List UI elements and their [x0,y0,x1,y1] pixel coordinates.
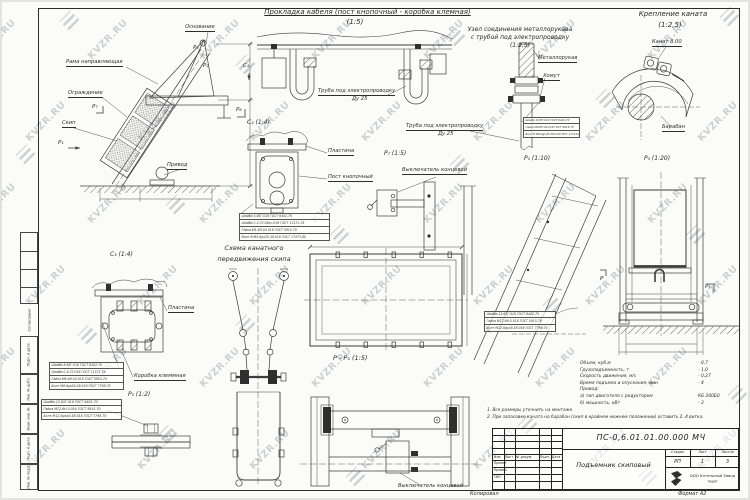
hw-row: Винт В.М6-6gх25.58.016 ГОСТ 17473-80 [523,130,580,137]
title-block: Изм. Лист № докум. Подп. Дата Проект Про… [492,428,739,490]
note-line: 1. Все размеры уточнить на монтаже. [487,408,739,415]
format-label: Формат А2 [678,491,706,497]
view-label-pp5: Р - Р₅ (1:5) [333,354,368,362]
hardware-list-node: Шайба 6.65Г.016 ГОСТ 6402-70 Гайка М6-6Н… [523,117,580,138]
spec-label: Скорость движения, м/с [580,374,636,379]
tb-sheets-value: 3 [715,459,740,465]
label-clamp: Хомут [543,74,560,81]
spec-label: Время подъема и опускания, мин [580,381,658,386]
spec-value: - 0,7 [698,361,708,366]
hardware-list-r5: Шайба 12.65Г.016 ГОСТ 6402-70 Гайка М12-… [41,399,122,420]
spec-value: - 3 [698,401,704,406]
spec-label: б) мощность, кВт [580,401,620,406]
mark-r2: Р₂ [203,63,209,69]
spec-label: Объем, куб.м [580,361,611,366]
cable-view-scale: (1:5) [340,18,370,26]
view-label-c2: С₂ (1:4) [247,119,270,126]
view-label-r5: Р₅ (1:2) [128,391,150,398]
spec-value: - 4 [698,381,704,386]
tb-row-gip: ГИП [494,475,515,479]
tb-sheet-label: Лист [690,450,715,454]
scheme-title-2: передвижения скипа [204,255,304,263]
company-logo [671,471,682,486]
hardware-list-c2: Шайба 5.65Г.016 ГОСТ 6402-70 Шайба С.5.3… [239,213,330,241]
drawing-line-art [0,0,750,500]
label-base: Основание [185,25,215,32]
hw-row: Болт М12-6gх40.58.016 ГОСТ 7798-70 [41,412,122,419]
tb-row-prover: Провер. [494,468,515,472]
spec-row: б) мощность, кВт- 3 [580,401,720,408]
label-plate-c2: Пластина [328,149,354,156]
tb-doc-title: Подъемник скиповый [562,461,665,469]
spec-row: Привод: [580,387,720,394]
spec-row: Скорость движения, м/с- 0,27 [580,374,720,381]
spec-row: Время подъема и опускания, мин- 4 [580,381,720,388]
tb-company-1: ООО Котельный Завод [685,473,740,478]
spec-value: - 1,0 [698,368,708,373]
drawing-notes: 1. Все размеры уточнить на монтаже. 2. П… [487,408,739,421]
rope-scheme-art [229,268,289,486]
tb-sheet-value: 1 [690,459,715,465]
label-button-post: Пост кнопочный [328,175,373,182]
view-label-r1: Р₁ (1:10) [524,155,550,162]
node-view-title-1: Узел соединения металлорукава [440,26,600,33]
hardware-list-c3: Шайба 8.65Г.016 ГОСТ 6402-70 Шайба С.8.3… [49,362,124,390]
label-conduit-dn: Ду 25 [352,97,367,103]
label-metal-hose: Металлорукав [538,56,577,63]
guide-frame-r3-art [600,172,739,355]
spec-value: - 0,27 [698,374,711,379]
label-plate-c3: Пластина [168,306,194,313]
scheme-title-1: Схема канатного [204,244,304,252]
hw-row: Винт В.М5-6gх20.58.016 ГОСТ 17473-80 [239,233,330,240]
mark-c4: С₄ [243,63,249,69]
tb-col-data: Дата [552,455,562,459]
label-skip: Скип [62,121,76,128]
hardware-list-r1: Шайба 12.65Г.016 ГОСТ 6402-70 Гайка М12-… [484,311,556,332]
spec-row: а) тип двигателя с редукторомКБ 200Б0 [580,394,720,401]
mark-r4: Р₄ [193,45,199,51]
spec-label: а) тип двигателя с редуктором [580,394,653,399]
label-terminal-box: Коробка клеммная [134,374,186,381]
label-rope: Канат 8.00 [652,40,682,47]
view-label-c3: С₃ (1:4) [110,251,133,258]
cable-view-title: Прокладка кабеля (пост кнопочный - короб… [240,8,495,16]
tb-stage-value: РП [665,459,690,465]
inclined-frame-r1-art [460,174,606,377]
tb-col-dokum: № докум. [516,455,538,459]
label-drive: Привод [167,163,187,170]
tb-company-2: "РЭП" [685,479,740,484]
rope-fastening-art [612,47,700,140]
mark-r7: Р₇ [92,104,98,110]
label-guard: Ограждение [68,91,103,98]
mark-r3-p: Р [600,276,603,282]
tb-col-podp: Подп. [540,455,551,459]
label-limit-switch-bottom: Выключатель концевой [398,484,463,491]
mark-r3-p5: Р₅ [705,284,711,290]
rope-view-title: Крепление каната [608,10,738,18]
rope-view-scale: (1:2,5) [640,21,700,29]
label-drum: Барабан [662,125,685,132]
view-label-r7: Р₇ (1:5) [384,150,406,157]
node-view-title-2: с трубой под электропроводку [440,34,600,41]
hw-row: Болт М12-6gх40.58.016 ГОСТ 7798-70 [484,324,556,331]
label-node-dn: Ду 25 [438,132,453,138]
label-limit-switch-r7: Выключатель концевой [402,168,467,175]
view-label-r3: Р₃ (1:20) [644,155,670,162]
label-guide-frame: Рама направляющая [66,60,123,67]
button-post-art [239,131,327,215]
note-line: 2. При запасовке каната на барабан (скип… [487,415,739,422]
tb-col-izm: Изм. [494,455,504,459]
hw-row: Болт М8-6gх50.58.016 ГОСТ 7798-70 [49,382,124,389]
copied-by-label: Копировал [470,491,499,497]
node-view-scale: (1:2,5) [440,42,600,49]
limit-switch-r7-art [368,177,436,250]
mark-r1: Р₁ [58,140,64,146]
tb-row-proekt: Проект [494,461,515,465]
drawing-sheet: KVZR.RUKVZR.RUKVZR.RUKVZR.RUKVZR.RUKVZR.… [0,0,750,500]
tb-col-list: Лист [505,455,515,459]
base-section-art [300,397,480,486]
tech-specs: Объем, куб.м- 0,7 Грузоподъемность, т- 1… [580,361,720,407]
tb-sheets-label: Листов [715,450,740,454]
spec-value: КБ 200Б0 [698,394,720,399]
tb-doc-number: ПС-0,6.01.01.00.000 МЧ [562,433,740,442]
mark-r6: Р₆ [236,107,242,113]
spec-label: Привод: [580,387,599,392]
main-assembly-art [68,32,253,202]
spec-row: Объем, куб.м- 0,7 [580,361,720,368]
frame-plan-art [304,245,468,352]
spec-label: Грузоподъемность, т [580,368,629,373]
tb-stage-label: Стадия [665,450,690,454]
